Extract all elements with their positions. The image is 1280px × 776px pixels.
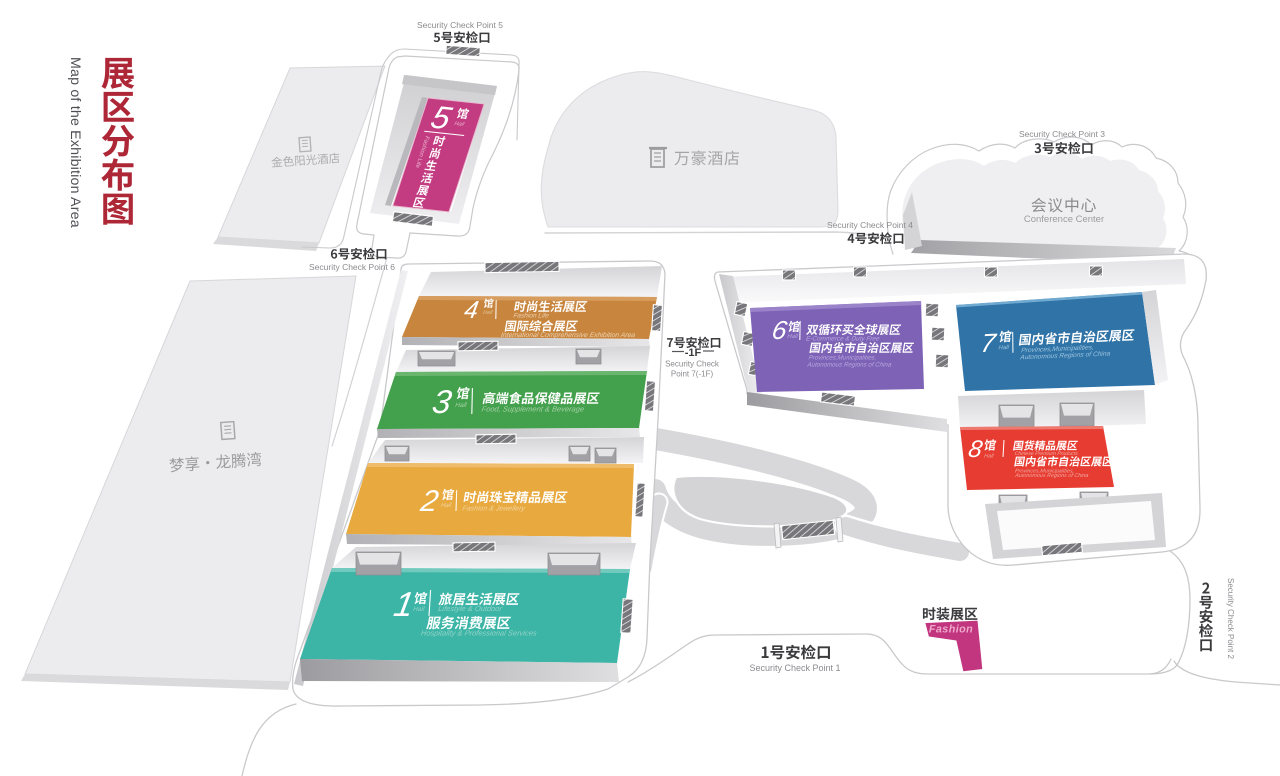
svg-text:Hall: Hall [413,606,426,613]
svg-text:Hall: Hall [440,503,452,509]
svg-text:Lifestyle & Outdoor: Lifestyle & Outdoor [438,604,504,613]
svg-text:Map of the Exhibition Area: Map of the Exhibition Area [67,57,83,228]
svg-text:Fashion & Jewellery: Fashion & Jewellery [462,506,526,513]
svg-text:Fashion: Fashion [929,624,973,636]
svg-text:Hall: Hall [998,345,1010,351]
svg-text:International Comprehensive Ex: International Comprehensive Exhibition A… [500,332,636,339]
svg-text:Hall: Hall [787,334,799,340]
svg-text:Fashion Life: Fashion Life [513,313,550,320]
svg-text:Security Check Point 1: Security Check Point 1 [749,663,840,673]
svg-text:Provinces,Municipalities,: Provinces,Municipalities, [808,355,877,362]
svg-text:Security Check Point 3: Security Check Point 3 [1019,129,1105,139]
svg-text:Point 7(-1F): Point 7(-1F) [671,370,714,379]
svg-text:E-Commerce & Duty Free: E-Commerce & Duty Free [805,336,880,343]
svg-text:-1F: -1F [685,347,702,359]
svg-text:Hospitality & Professional Ser: Hospitality & Professional Services [420,629,538,638]
svg-text:Chinese Premium Products: Chinese Premium Products [1014,451,1079,457]
svg-text:Autonomous Regions of China: Autonomous Regions of China [1014,473,1089,479]
svg-text:Security Check: Security Check [665,360,720,369]
svg-text:Autonomous Regions of China: Autonomous Regions of China [806,362,893,369]
svg-text:Food, Supplement & Beverage: Food, Supplement & Beverage [481,405,585,414]
svg-text:Security Check Point 2: Security Check Point 2 [1226,578,1235,659]
svg-text:Hall: Hall [455,402,468,409]
svg-text:Security Check Point 5: Security Check Point 5 [417,20,503,30]
svg-text:Conference Center: Conference Center [1024,214,1104,225]
svg-text:Hall: Hall [984,454,995,460]
svg-text:Security Check Point 4: Security Check Point 4 [827,220,913,230]
svg-text:Hall: Hall [482,310,493,316]
svg-text:Security Check Point 6: Security Check Point 6 [309,262,395,272]
